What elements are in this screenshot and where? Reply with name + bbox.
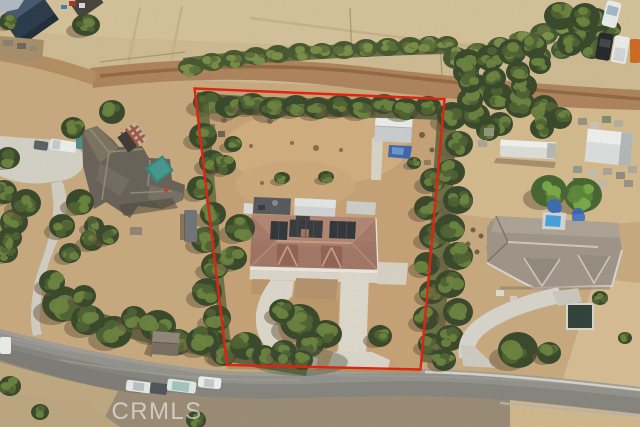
svg-text:CRMLS: CRMLS: [111, 398, 202, 425]
